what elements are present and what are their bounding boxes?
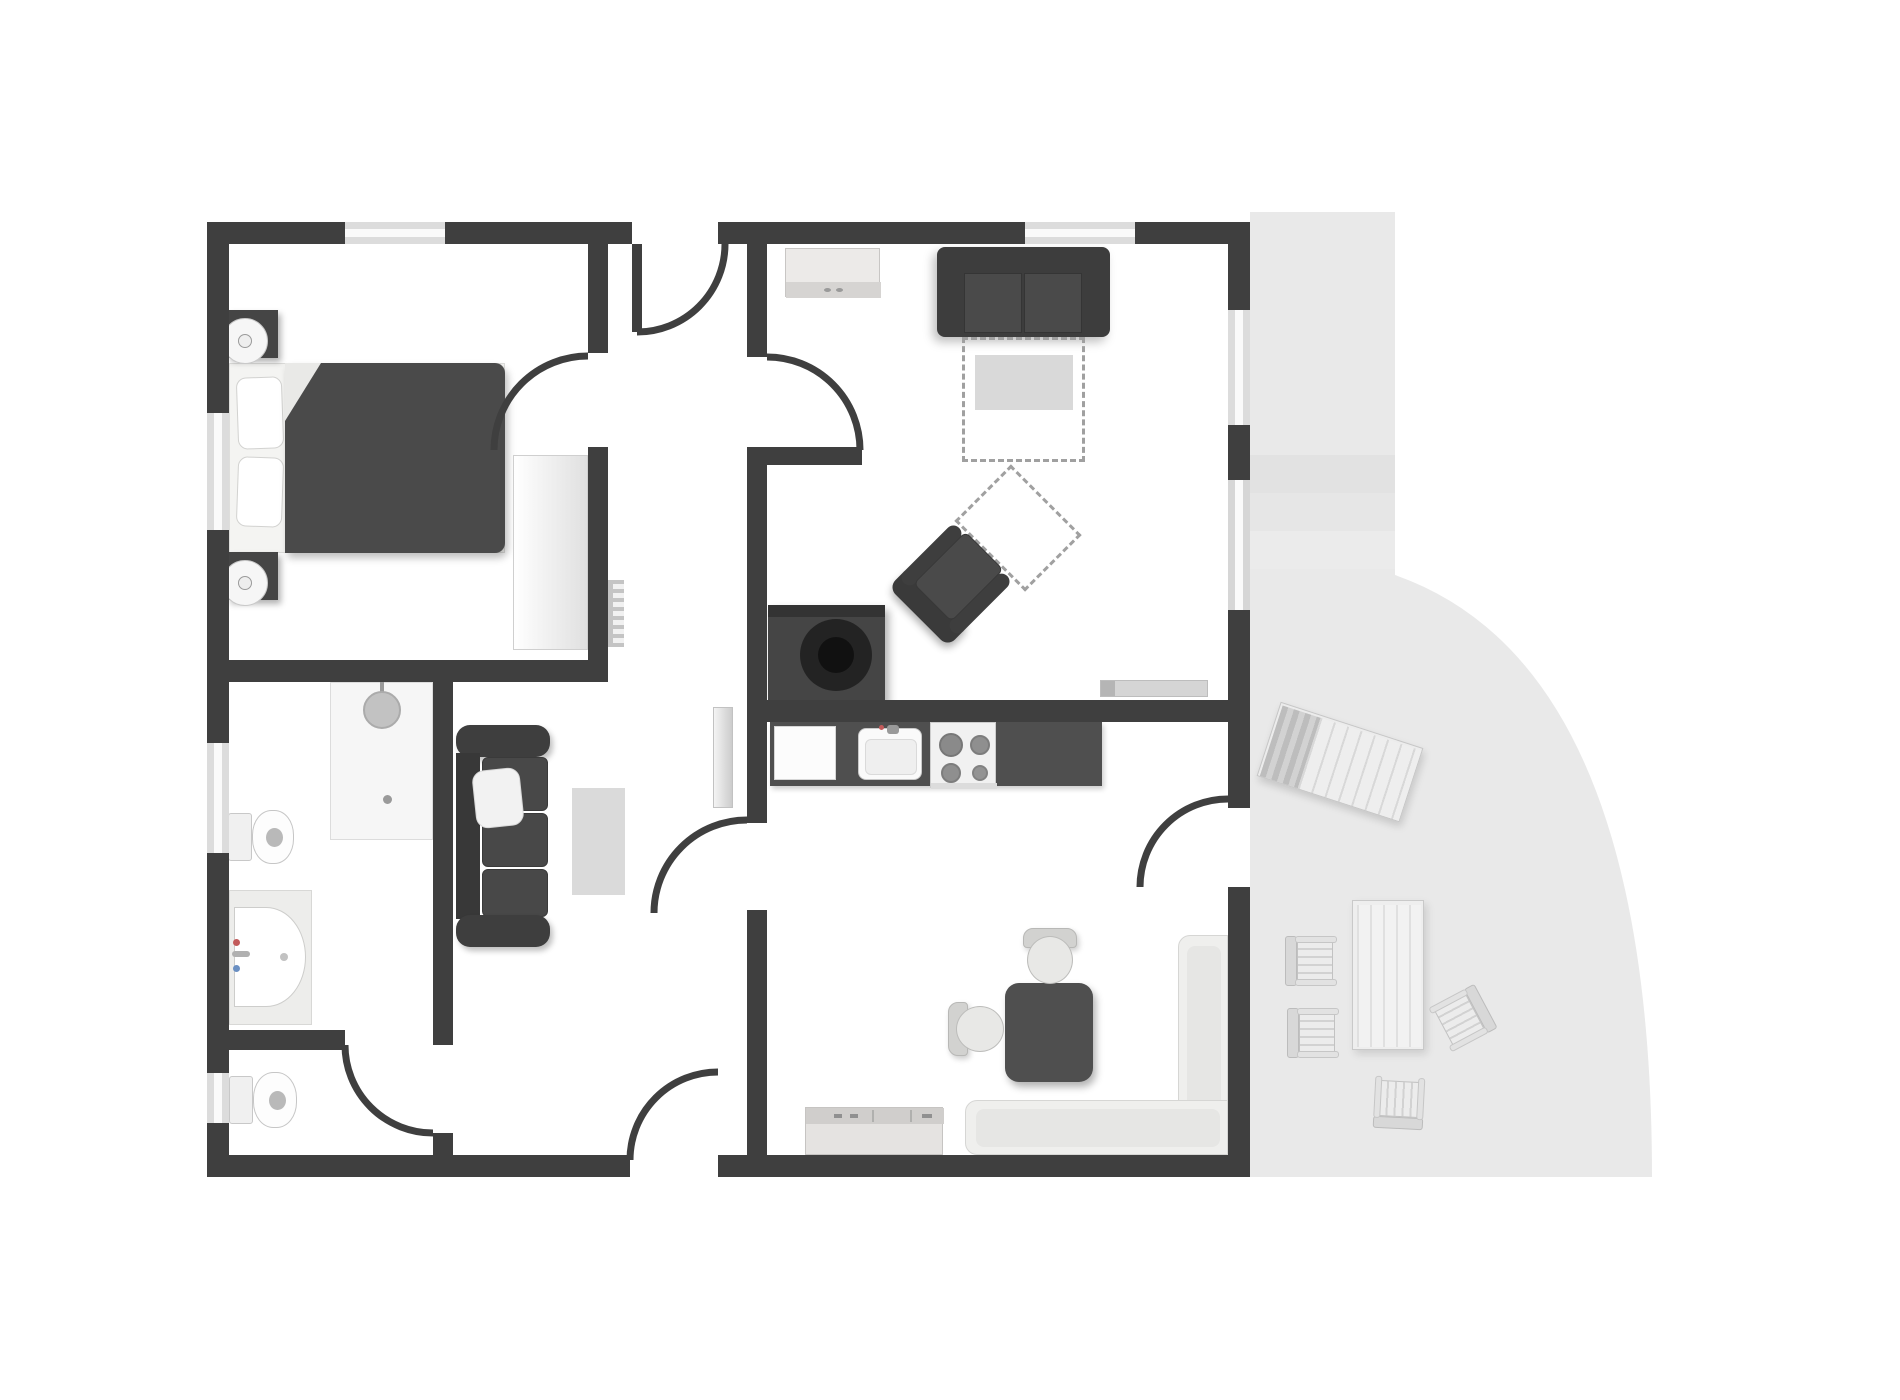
exit-door-arc	[630, 1072, 718, 1160]
patio-door-arc	[1140, 799, 1228, 887]
wc-door-arc	[345, 1045, 433, 1133]
floor-plan	[0, 0, 1900, 1400]
bedroom-door-arc	[494, 356, 588, 450]
entry-door-arc	[637, 244, 725, 332]
kitchen-door-arc	[654, 820, 747, 913]
living-door-arc	[767, 357, 860, 450]
svg-over	[0, 0, 1900, 1400]
